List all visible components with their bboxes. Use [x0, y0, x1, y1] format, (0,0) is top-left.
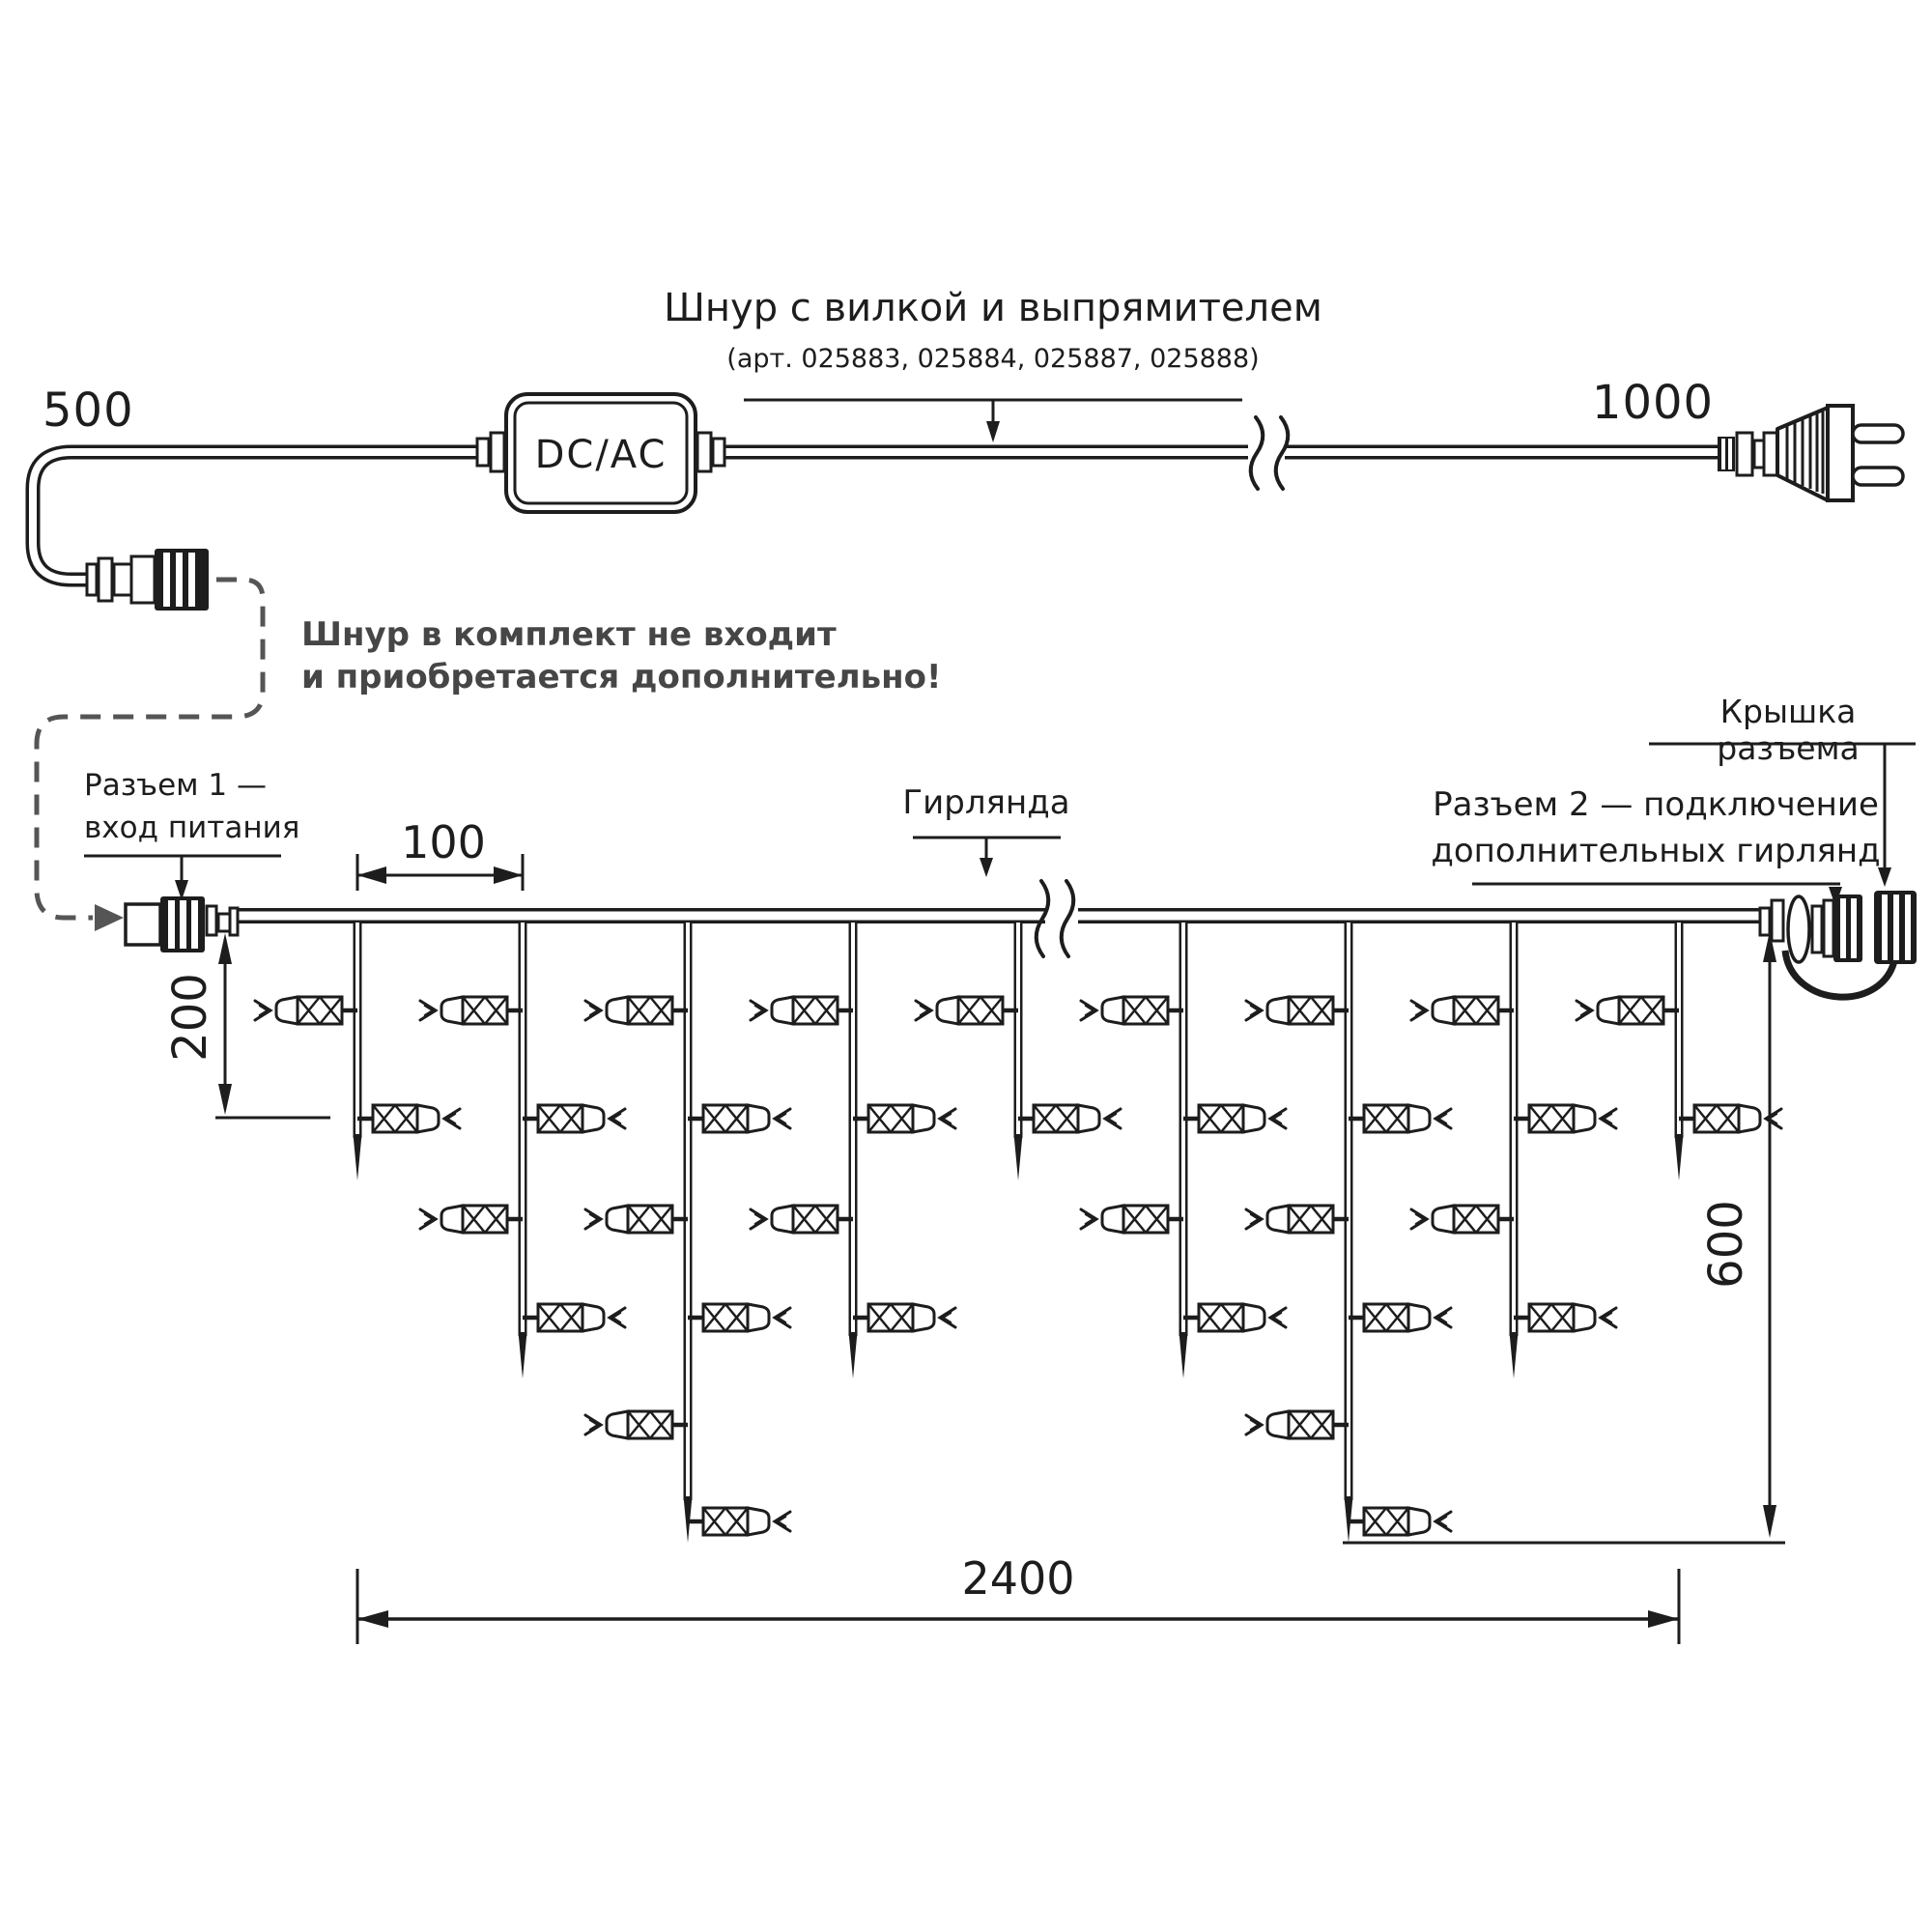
- bulb-body: [373, 1105, 417, 1132]
- bulb-cap: [1739, 1105, 1760, 1132]
- cord-500-label: 500: [43, 384, 168, 438]
- bulb-cap: [772, 997, 793, 1024]
- connector1-label-line1: Разъем 1 —: [84, 769, 267, 804]
- bulb-cap: [1408, 1508, 1430, 1535]
- bulb-body: [958, 997, 1003, 1024]
- bulb-cap: [1598, 997, 1619, 1024]
- bulb-body: [868, 1105, 913, 1132]
- title-pointer: [744, 400, 1242, 442]
- cord-1000-label: 1000: [1556, 377, 1749, 430]
- cable-joint-icon: [697, 433, 711, 471]
- bulb-body: [703, 1105, 748, 1132]
- bulb-body: [1034, 1105, 1078, 1132]
- connector2-pointer: [1472, 884, 1842, 906]
- bulb-body: [1454, 997, 1498, 1024]
- cord-break-icon: [1251, 417, 1289, 489]
- bulb-body: [1364, 1508, 1408, 1535]
- subtitle-label: (арт. 025883, 025884, 025887, 025888): [607, 344, 1379, 374]
- bulb-body: [1289, 1411, 1333, 1438]
- bulb-body: [703, 1508, 748, 1535]
- bulb-cap: [1574, 1105, 1595, 1132]
- dim-200-label: 200: [164, 940, 213, 1094]
- not-included-line1: Шнур в комплект не входит: [301, 616, 837, 654]
- bulb-cap: [1433, 997, 1454, 1024]
- bulb-cap: [276, 997, 298, 1024]
- connector2-icon: [1760, 891, 1917, 997]
- drop-tip: [354, 1134, 362, 1180]
- bulb-cap: [607, 1411, 628, 1438]
- bulb-body: [793, 997, 838, 1024]
- bulb-body: [628, 1411, 672, 1438]
- bulb-cap: [441, 997, 463, 1024]
- bulb-cap: [417, 1105, 439, 1132]
- bulb-cap: [1078, 1105, 1099, 1132]
- bulb-cap: [607, 1206, 628, 1233]
- bulb-body: [1529, 1105, 1574, 1132]
- bulb-cap: [913, 1304, 934, 1331]
- bulb-cap: [772, 1206, 793, 1233]
- bulb-cap: [1574, 1304, 1595, 1331]
- connector1-label-line2: вход питания: [84, 811, 299, 846]
- bulb-cap: [1102, 997, 1123, 1024]
- bulb-body: [1529, 1304, 1574, 1331]
- adapter-connector-icon: [87, 549, 209, 611]
- bulb-cap: [748, 1105, 769, 1132]
- bulb-body: [1123, 997, 1168, 1024]
- drop-tip: [849, 1332, 858, 1378]
- bulb-cap: [748, 1508, 769, 1535]
- bulb-body: [628, 1206, 672, 1233]
- dim-600-label: 600: [1700, 1167, 1748, 1321]
- bulb-cap: [1243, 1304, 1264, 1331]
- bulb-cap: [582, 1105, 604, 1132]
- wire-break-icon: [1037, 881, 1074, 956]
- bulb-cap: [1243, 1105, 1264, 1132]
- cable-joint-icon: [477, 439, 489, 466]
- drop-tip: [519, 1332, 527, 1378]
- bulb-body: [1199, 1304, 1243, 1331]
- bulb-cap: [1433, 1206, 1454, 1233]
- dim-2400-label: 2400: [922, 1553, 1115, 1605]
- bulb-body: [1289, 997, 1333, 1024]
- bulb-body: [298, 997, 342, 1024]
- bulb-cap: [1267, 997, 1289, 1024]
- bulb-cap: [1408, 1304, 1430, 1331]
- dashed-arrowhead-icon: [95, 904, 124, 931]
- bulb-body: [1454, 1206, 1498, 1233]
- bulb-body: [1289, 1206, 1333, 1233]
- bulb-body: [793, 1206, 838, 1233]
- dcac-label: DC/AC: [506, 433, 696, 477]
- cap-label: Крышка разъема: [1650, 694, 1926, 767]
- connector2-label-line2: дополнительных гирлянд: [1424, 833, 1888, 870]
- dashed-path: [37, 580, 263, 931]
- bulb-cap: [913, 1105, 934, 1132]
- bulb-body: [703, 1304, 748, 1331]
- adapter-cord-cable: [33, 452, 1721, 580]
- bulb-body: [1364, 1105, 1408, 1132]
- bulb-cap: [582, 1304, 604, 1331]
- drop-tip: [1014, 1134, 1023, 1180]
- drop-tip: [1179, 1332, 1188, 1378]
- garland-label: Гирлянда: [890, 784, 1083, 822]
- bulb-body: [1199, 1105, 1243, 1132]
- bulb-cap: [937, 997, 958, 1024]
- bulb-body: [538, 1105, 582, 1132]
- bulb-cap: [1267, 1411, 1289, 1438]
- bulb-body: [628, 997, 672, 1024]
- bulb-cap: [1102, 1206, 1123, 1233]
- bulb-cap: [1408, 1105, 1430, 1132]
- not-included-line2: и приобретается дополнительно!: [301, 659, 941, 696]
- bulb-body: [1364, 1304, 1408, 1331]
- bulb-body: [1123, 1206, 1168, 1233]
- connector2-label-line1: Разъем 2 — подключение: [1424, 786, 1888, 824]
- bulb-body: [463, 997, 507, 1024]
- bulb-cap: [1267, 1206, 1289, 1233]
- title-label: Шнур с вилкой и выпрямителем: [607, 286, 1379, 330]
- bulb-cap: [441, 1206, 463, 1233]
- connector1-pointer: [84, 856, 281, 900]
- drop-tip: [1675, 1134, 1684, 1180]
- drops-layer: [255, 921, 1781, 1543]
- bulb-body: [463, 1206, 507, 1233]
- bulb-body: [1619, 997, 1663, 1024]
- bulb-body: [538, 1304, 582, 1331]
- dim-100-label: 100: [385, 817, 501, 868]
- garland-pointer: [913, 838, 1061, 877]
- bulb-cap: [748, 1304, 769, 1331]
- bulb-body: [1694, 1105, 1739, 1132]
- icicle-garland-scheme: 500 1000 DC/AC Шнур с вилкой и выпрямите…: [0, 0, 1932, 1932]
- drop-tip: [1510, 1332, 1519, 1378]
- bulb-cap: [607, 997, 628, 1024]
- bulb-body: [868, 1304, 913, 1331]
